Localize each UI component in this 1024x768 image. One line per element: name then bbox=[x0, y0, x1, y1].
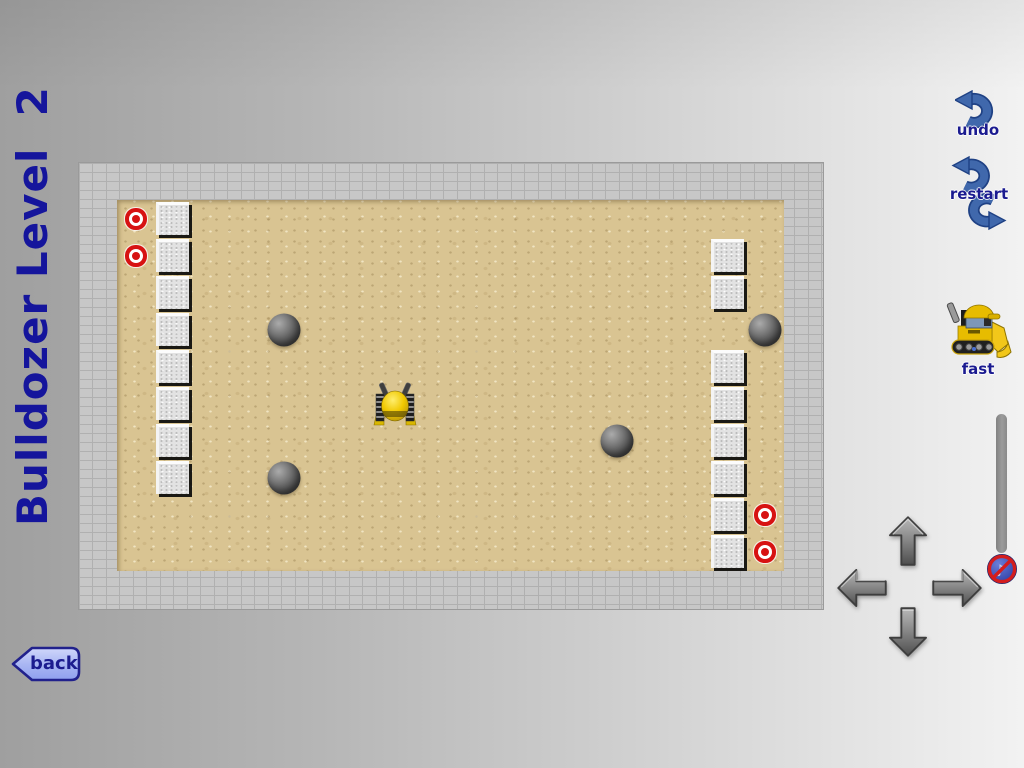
restart-button[interactable]: restart bbox=[946, 154, 1012, 234]
sound-slider-track[interactable] bbox=[996, 414, 1007, 553]
back-button[interactable]: back bbox=[8, 643, 82, 685]
wall-block bbox=[156, 239, 189, 272]
restart-label: restart bbox=[946, 187, 1012, 202]
wall-block bbox=[156, 424, 189, 457]
wall-block bbox=[156, 461, 189, 494]
target-marker bbox=[132, 215, 140, 223]
arrow-down-icon bbox=[889, 607, 927, 657]
wall-block bbox=[156, 387, 189, 420]
boulder-ball bbox=[749, 313, 782, 346]
level-title: Bulldozer Level 2 bbox=[2, 118, 64, 526]
wall-block bbox=[156, 350, 189, 383]
wall-block bbox=[711, 276, 744, 309]
move-down-button[interactable] bbox=[889, 607, 927, 661]
wall-block bbox=[711, 350, 744, 383]
wall-block bbox=[711, 239, 744, 272]
fast-label: fast bbox=[962, 362, 995, 377]
target-marker bbox=[132, 252, 140, 260]
arrow-up-icon bbox=[889, 516, 927, 566]
wall-block bbox=[711, 424, 744, 457]
boulder-ball bbox=[267, 313, 300, 346]
target-marker bbox=[761, 548, 769, 556]
boulder-ball bbox=[267, 462, 300, 495]
sound-off-icon: ♪ bbox=[985, 552, 1019, 586]
wall-block bbox=[156, 202, 189, 235]
move-up-button[interactable] bbox=[889, 516, 927, 570]
arrow-right-icon bbox=[932, 569, 982, 607]
wall-block bbox=[711, 461, 744, 494]
bulldozer-side-icon bbox=[944, 296, 1012, 360]
move-left-button[interactable] bbox=[837, 569, 887, 611]
undo-button[interactable]: undo bbox=[948, 90, 1008, 146]
game-board bbox=[78, 162, 824, 610]
bulldozer-player bbox=[373, 381, 417, 427]
game-screen: Bulldozer Level 2 bbox=[0, 0, 1024, 768]
move-right-button[interactable] bbox=[932, 569, 982, 611]
wall-block bbox=[711, 387, 744, 420]
target-marker bbox=[761, 511, 769, 519]
back-label: back bbox=[30, 653, 76, 674]
wall-block bbox=[711, 535, 744, 568]
undo-label: undo bbox=[957, 123, 999, 138]
sand-floor bbox=[117, 200, 784, 571]
fast-speed-button[interactable]: fast bbox=[940, 296, 1016, 382]
boulder-ball bbox=[601, 425, 634, 458]
wall-block bbox=[711, 498, 744, 531]
wall-block bbox=[156, 313, 189, 346]
arrow-left-icon bbox=[837, 569, 887, 607]
bulldozer-top-icon bbox=[373, 381, 417, 427]
sound-slider-knob[interactable]: ♪ bbox=[985, 552, 1019, 586]
wall-block bbox=[156, 276, 189, 309]
